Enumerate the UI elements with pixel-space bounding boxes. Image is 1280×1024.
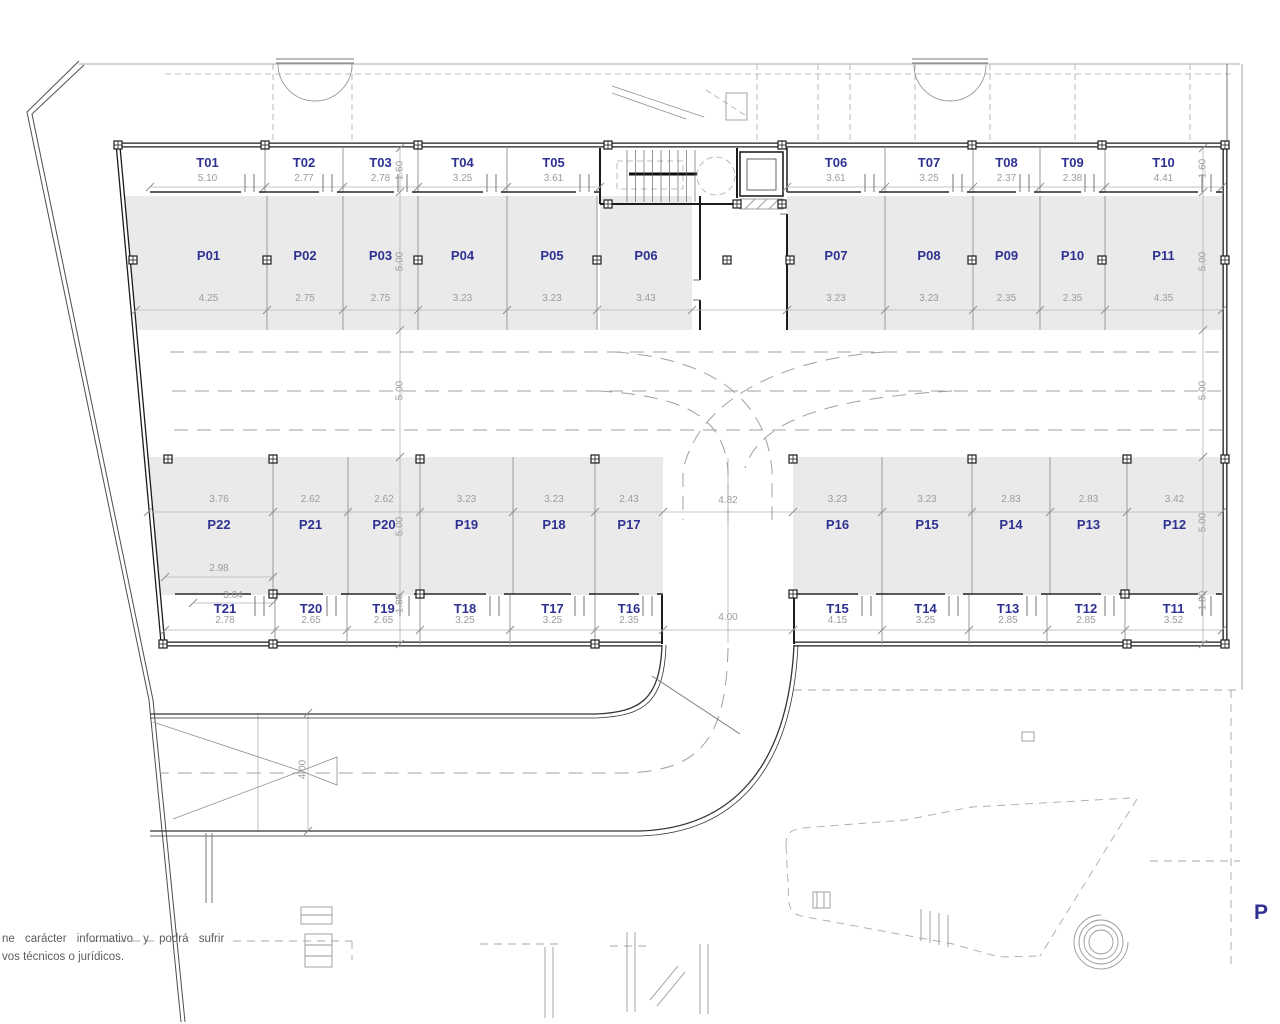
storage-room-t21-dim: 2.78 (175, 615, 275, 626)
storage-room-t17-dim: 3.25 (510, 615, 595, 626)
storage-room-t01-dim: 5.10 (150, 173, 265, 184)
parking-space-p06-label: P06 (600, 248, 692, 263)
site-fixture-icon (1022, 732, 1034, 741)
storage-room-t19-label: T19 (347, 601, 420, 616)
storage-room-t14-label: T14 (882, 601, 969, 616)
parking-space-p13-dim: 2.83 (1050, 494, 1127, 505)
parking-space-p08-dim: 3.23 (885, 293, 973, 304)
parking-space-p10-dim: 2.35 (1040, 293, 1105, 304)
door-swing-left-icon (276, 59, 354, 101)
ramp-slope-arrow-icon (153, 722, 301, 819)
parking-space-p22-label: P22 (165, 517, 273, 532)
parking-space-p05-dim: 3.23 (507, 293, 597, 304)
parking-space-p08-label: P08 (885, 248, 973, 263)
parking-space-p11-dim: 4.35 (1105, 293, 1222, 304)
storage-room-t20-dim: 2.65 (275, 615, 347, 626)
storage-room-t06-dim: 3.61 (787, 173, 885, 184)
storage-room-t20-label: T20 (275, 601, 347, 616)
parking-space-p14-dim: 2.83 (972, 494, 1050, 505)
storage-room-t08-label: T08 (973, 155, 1040, 170)
ramp-dim: 4.00 (298, 753, 309, 787)
plan-linework (0, 0, 1280, 1024)
pool-outline (786, 732, 1137, 957)
parking-space-p13-label: P13 (1050, 517, 1127, 532)
spa-circles-icon (1074, 915, 1128, 969)
storage-room-t16-label: T16 (595, 601, 663, 616)
storage-room-t13-dim: 2.85 (969, 615, 1047, 626)
parking-space-p21-dim: 2.62 (273, 494, 348, 505)
storage-room-t18-dim: 3.25 (420, 615, 510, 626)
parking-space-p05-label: P05 (507, 248, 597, 263)
storage-room-t16-dim: 2.35 (595, 615, 663, 626)
parking-space-p19-dim: 3.23 (420, 494, 513, 505)
parking-space-p04-label: P04 (418, 248, 507, 263)
storage-room-t05-label: T05 (507, 155, 600, 170)
parking-space-p16-dim: 3.23 (793, 494, 882, 505)
disclaimer-text: ne carácter informativo y podrá sufrir v… (2, 931, 224, 967)
parking-space-p22-extra-dim: 2.98 (165, 563, 273, 574)
storage-room-t21-label: T21 (175, 601, 275, 616)
parking-space-p20-dim: 2.62 (348, 494, 420, 505)
parking-space-p01-dim: 4.25 (150, 293, 267, 304)
storage-room-t09-label: T09 (1040, 155, 1105, 170)
parking-space-p01-label: P01 (150, 248, 267, 263)
storage-room-t04-dim: 3.25 (418, 173, 507, 184)
garage-floor-plan: T015.10T022.77T032.78T043.25T053.61T063.… (0, 0, 1280, 1024)
parking-space-p02-dim: 2.75 (267, 293, 343, 304)
ground-floor-fragments (90, 833, 708, 1018)
vertical-dim-left: 5.00 (395, 374, 406, 408)
pool-ladder-icon (813, 892, 830, 908)
parking-space-p17-dim: 2.43 (595, 494, 663, 505)
storage-room-t15-label: T15 (793, 601, 882, 616)
storage-room-t07-label: T07 (885, 155, 973, 170)
center-gap-dim-top: 4.82 (698, 495, 758, 506)
storage-room-t03-label: T03 (343, 155, 418, 170)
storage-room-t15-dim: 4.15 (793, 615, 882, 626)
storage-room-t02-dim: 2.77 (265, 173, 343, 184)
turning-circle-icon (697, 157, 735, 195)
storage-room-t17-label: T17 (510, 601, 595, 616)
parking-space-p07-dim: 3.23 (787, 293, 885, 304)
storage-room-t08-dim: 2.37 (973, 173, 1040, 184)
storage-room-t03-dim: 2.78 (343, 173, 418, 184)
vertical-dim-left: 1.80 (395, 587, 406, 621)
disclaimer-line-1: ne carácter informativo y podrá sufrir (2, 931, 224, 949)
parking-space-p19-label: P19 (420, 517, 513, 532)
parking-space-p02-label: P02 (267, 248, 343, 263)
storage-room-t06-label: T06 (787, 155, 885, 170)
ground-level-site-lines (794, 690, 1240, 966)
parking-space-p15-dim: 3.23 (882, 494, 972, 505)
parking-space-p03-label: P03 (343, 248, 418, 263)
vertical-dim-right: 5.00 (1198, 506, 1209, 540)
storage-room-t12-label: T12 (1047, 601, 1125, 616)
parking-space-p12-dim: 3.42 (1127, 494, 1222, 505)
storage-room-t02-label: T02 (265, 155, 343, 170)
parking-space-p09-dim: 2.35 (973, 293, 1040, 304)
parking-space-p03-dim: 2.75 (343, 293, 418, 304)
vertical-dim-left: 5.00 (395, 510, 406, 544)
storage-room-t01-label: T01 (150, 155, 265, 170)
center-gap-dim-bottom: 4.00 (698, 612, 758, 623)
parking-space-p06-dim: 3.43 (600, 293, 692, 304)
staircase (600, 148, 738, 204)
parking-level-marker: P (1254, 901, 1268, 925)
parking-space-p10-label: P10 (1040, 248, 1105, 263)
vertical-dim-right: 1.80 (1198, 584, 1209, 618)
parking-space-p21-label: P21 (273, 517, 348, 532)
parking-space-p18-label: P18 (513, 517, 595, 532)
vertical-dim-left: 1.60 (395, 154, 406, 188)
exit-ramp (150, 645, 798, 836)
parking-space-p09-label: P09 (973, 248, 1040, 263)
disclaimer-line-2: vos técnicos o jurídicos. (2, 949, 224, 967)
parking-space-p22-dim: 3.76 (165, 494, 273, 505)
storage-room-t13-label: T13 (969, 601, 1047, 616)
parking-space-p17-label: P17 (595, 517, 663, 532)
roof-construction-lines (612, 64, 757, 142)
vertical-dim-right: 1.60 (1198, 152, 1209, 186)
storage-room-t09-dim: 2.38 (1040, 173, 1105, 184)
parking-space-p22-extra-dim: 3.04 (193, 590, 273, 601)
elevator-icon (737, 148, 783, 209)
storage-room-t19-dim: 2.65 (347, 615, 420, 626)
parking-space-p14-label: P14 (972, 517, 1050, 532)
storage-room-t18-label: T18 (420, 601, 510, 616)
vertical-dim-right: 5.00 (1198, 374, 1209, 408)
vertical-dim-left: 5.00 (395, 245, 406, 279)
parking-space-p15-label: P15 (882, 517, 972, 532)
storage-room-t04-label: T04 (418, 155, 507, 170)
storage-room-t12-dim: 2.85 (1047, 615, 1125, 626)
door-swing-right-icon (912, 59, 988, 101)
pool-steps-icon (921, 909, 948, 947)
storage-room-t05-dim: 3.61 (507, 173, 600, 184)
storage-room-t14-dim: 3.25 (882, 615, 969, 626)
parking-space-p18-dim: 3.23 (513, 494, 595, 505)
parking-space-p16-label: P16 (793, 517, 882, 532)
parking-space-p07-label: P07 (787, 248, 885, 263)
storage-room-t07-dim: 3.25 (885, 173, 973, 184)
parking-space-p20-label: P20 (348, 517, 420, 532)
vertical-dim-right: 5.00 (1198, 245, 1209, 279)
parking-space-p04-dim: 3.23 (418, 293, 507, 304)
